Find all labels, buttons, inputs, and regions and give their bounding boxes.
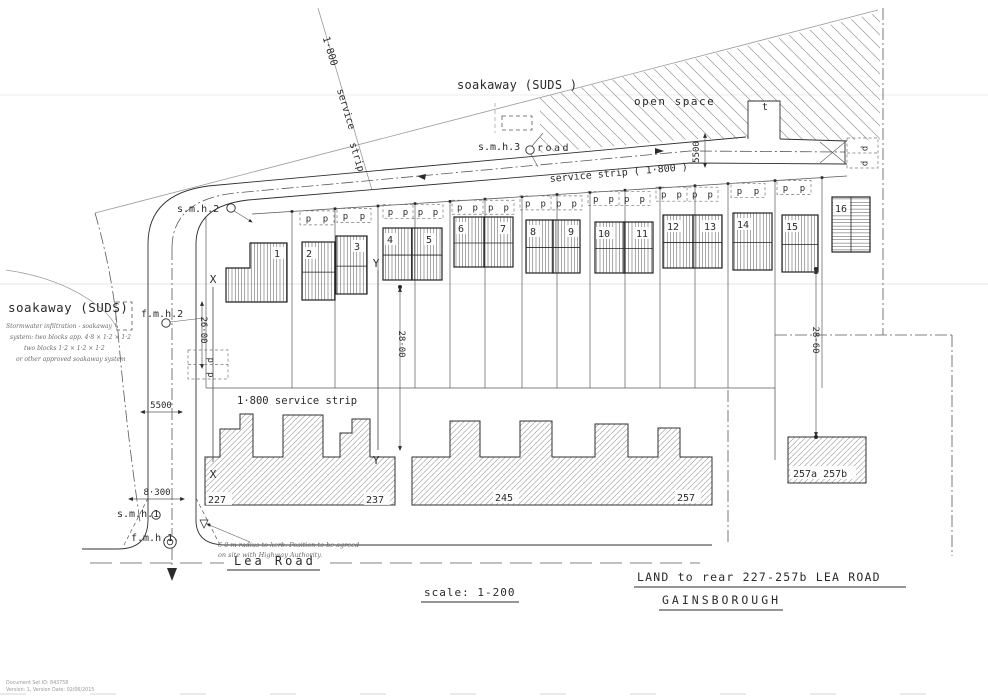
parking-space-label: p [433, 208, 438, 218]
frontage-dot [694, 184, 697, 187]
house-227-label: 227 [208, 495, 226, 506]
manhole-smh2 [227, 204, 235, 212]
section-marker-y-bottom: Y [373, 454, 380, 467]
dim-2860: 28·60 [810, 326, 820, 353]
parking-space-label: p [525, 199, 530, 209]
soakaway-left-label: soakaway (SUDS) [8, 300, 128, 315]
title-line1: LAND to rear 227-257b LEA ROAD [637, 570, 881, 584]
plot-number: 9 [568, 227, 574, 238]
smh3-label: s.m.h.3 [478, 142, 520, 153]
dim-26: 26·00 [198, 316, 208, 343]
dim-8300: 8·300 [143, 488, 170, 498]
footer-version: Version: 1, Version Date: 02/06/2015 [6, 687, 94, 693]
highway-note-1: 6·0 m radius to kerb. Position to be agr… [218, 541, 359, 549]
dim-5500-turning: 5500 [692, 141, 702, 163]
diag-label-service: service [334, 88, 357, 132]
lea-road [82, 244, 712, 581]
open-space-hatch [540, 14, 880, 153]
road-label: road [537, 143, 571, 154]
manhole-fmh2 [162, 319, 170, 327]
radius-marker [200, 520, 208, 528]
house-257-label: 257 [677, 493, 695, 504]
plot-number: 13 [704, 222, 716, 233]
plot-number: 1 [274, 249, 280, 260]
frontage-dot [659, 187, 662, 190]
fmh2-label: f.m.h.2 [141, 309, 183, 320]
parking-space-label: p [661, 191, 666, 201]
smh1-label: s.m.h.1 [117, 509, 159, 520]
parking-space-label: p [343, 212, 348, 222]
parking-space-label: p [388, 208, 393, 218]
frontage-dot [556, 193, 559, 196]
highway-note-leader [207, 524, 250, 542]
section-marker-x-top: X [210, 273, 217, 286]
text-layer: soakaway (SUDS ) open space s.m.h.3 road… [6, 35, 906, 693]
dim-dot [398, 285, 402, 289]
parking-space-label: p [860, 161, 870, 166]
parking-space-label: p [488, 204, 493, 214]
plot-number: 5 [426, 235, 432, 246]
parking-space-label: p [737, 187, 742, 197]
parking-space-label: p [860, 146, 870, 151]
service-strip-road-label: service strip ( 1·800 ) [549, 162, 688, 185]
frontage-dot [624, 189, 627, 192]
parking-space-label: p [572, 199, 577, 209]
open-space-area [540, 14, 880, 153]
parking-space-label: p [800, 184, 805, 194]
house-237-label: 237 [366, 495, 384, 506]
flow-arrow-east [655, 148, 664, 154]
plot-number: 8 [530, 227, 536, 238]
plots-layer: 12345678910111213141516ppppppppppppppppp… [188, 138, 878, 388]
soakaway-note-3: two blocks 1·2 × 1·2 × 1·2 [24, 345, 105, 352]
soakaway-note-4: or other approved soakaway system [16, 356, 126, 363]
parking-space-label: p [306, 214, 311, 224]
dim-5500-road: 5500 [150, 401, 172, 411]
plot-number: 3 [354, 242, 360, 253]
site-plan-page: 12345678910111213141516ppppppppppppppppp… [0, 0, 988, 697]
section-marker-x-bottom: X [210, 468, 217, 481]
title-line2: GAINSBOROUGH [662, 593, 781, 607]
parking-space-label: p [473, 204, 478, 214]
west-boundary-line [95, 213, 140, 522]
parking-space-label: p [754, 187, 759, 197]
parking-space-label: p [403, 208, 408, 218]
plot-number: 14 [737, 220, 749, 231]
soakaway-box-top [502, 116, 532, 130]
soakaway-note-1: Stormwater infiltration - soakaway [6, 323, 113, 330]
frontage-dot [821, 176, 824, 179]
frontage-dot [334, 207, 337, 210]
service-strip-rear-label: 1·800 service strip [237, 395, 357, 407]
flow-arrow-west [417, 174, 426, 180]
house-257ab-label: 257a 257b [793, 469, 847, 480]
manhole-smh3 [526, 146, 534, 154]
site-plan-drawing: 12345678910111213141516ppppppppppppppppp… [0, 0, 988, 697]
dim-dot [814, 267, 818, 271]
terrace-227-237 [205, 414, 395, 505]
parking-space-label: p [609, 195, 614, 205]
parking-space-label: p [418, 208, 423, 218]
plot-number: 16 [835, 204, 847, 215]
plot-number: 12 [667, 222, 679, 233]
lea-road-label: Lea Road [234, 554, 316, 568]
frontage-dot [377, 205, 380, 208]
parking-space-label: p [708, 191, 713, 201]
footer-doc-id: Document Set ID: 843758 [6, 680, 68, 686]
frontage-dot [291, 210, 294, 213]
frontage-dot [449, 200, 452, 203]
diag-label-strip: strip [347, 141, 366, 173]
parking-space-label: p [323, 214, 328, 224]
parking-space-label: p [205, 372, 215, 377]
turning-head-label: t [762, 102, 768, 113]
parking-space-label: p [677, 191, 682, 201]
north-boundary-line [95, 10, 878, 213]
parking-space-label: p [556, 199, 561, 209]
plot-number: 11 [636, 229, 648, 240]
plot-number: 10 [598, 229, 610, 240]
house-245-label: 245 [495, 493, 513, 504]
plot-number: 2 [306, 249, 312, 260]
frontage-dot [727, 182, 730, 185]
frontage-dot [774, 179, 777, 182]
parking-space-label: p [640, 195, 645, 205]
parking-space-label: p [692, 191, 697, 201]
plot-number: 15 [786, 222, 798, 233]
parking-space-label: p [624, 195, 629, 205]
parking-space-label: p [541, 199, 546, 209]
outfall-arrow [167, 568, 177, 581]
existing-houses [205, 414, 866, 505]
parking-space-label: p [593, 195, 598, 205]
terrace-245-257 [412, 421, 712, 505]
plot-number: 4 [387, 235, 393, 246]
fmh1-label: f.m.h.1. [131, 533, 179, 544]
open-space-label: open space [634, 95, 715, 108]
parking-space-label: p [360, 212, 365, 222]
plot-number: 6 [458, 224, 464, 235]
soakaway-note-2: system: two blocks app. 4·8 × 1·2 × 1·2 [10, 334, 131, 341]
section-marker-y-top: Y [373, 257, 380, 270]
diag-label-1800: 1·800 [320, 35, 339, 67]
soakaway-top-label: soakaway (SUDS ) [457, 78, 577, 92]
dim-dot [814, 435, 818, 439]
parking-space-label: p [457, 204, 462, 214]
dim-28: 28·00 [396, 330, 406, 357]
smh2-leader [234, 211, 252, 222]
plot-number: 7 [500, 224, 506, 235]
parking-space-label: p [205, 358, 215, 363]
parking-space-label: p [783, 184, 788, 194]
scale-label: scale: 1-200 [424, 586, 515, 599]
parking-space-label: p [504, 204, 509, 214]
smh2-label: s.m.h.2 [177, 204, 219, 215]
